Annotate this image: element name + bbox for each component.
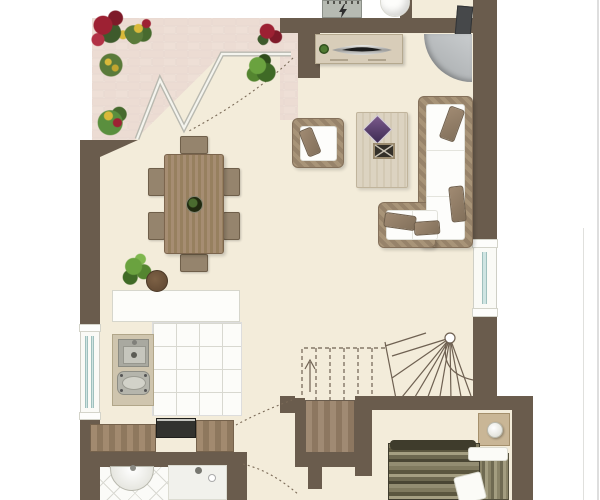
sideboard-handle-a	[330, 59, 348, 61]
kitchen-tiled-floor	[152, 322, 242, 416]
image-edge-line-inner	[583, 228, 584, 500]
table-centerpiece	[186, 196, 203, 213]
nightstand-lamp	[487, 422, 503, 438]
sofa-pillow-4	[414, 220, 441, 236]
electric-meter-box	[322, 0, 362, 18]
dining-chair-bottom	[180, 254, 208, 272]
cooktop-surface	[122, 376, 146, 390]
sink-drain	[131, 352, 137, 358]
sideboard-handle-b	[368, 59, 386, 61]
kitchen-appliance	[156, 418, 196, 438]
coffee-table	[356, 112, 408, 188]
green-bush	[244, 52, 278, 86]
kitchen-lower-cabinet-left	[90, 424, 156, 452]
dining-chair-right-1	[223, 168, 240, 196]
terrace-flower-bush-3	[256, 20, 284, 48]
shower	[168, 465, 227, 500]
kitchen-sink-counter	[112, 334, 154, 406]
kitchen-counter-white	[112, 290, 240, 322]
dining-chair-top	[180, 136, 208, 154]
cooktop-knob-c	[120, 389, 123, 392]
cooktop-knob-d	[144, 389, 147, 392]
cooktop	[117, 371, 150, 395]
terrace-flower-pot-1	[97, 50, 125, 80]
floorplan-canvas	[0, 0, 600, 500]
shower-head	[195, 467, 202, 474]
bed-sheet-fold	[468, 447, 508, 461]
image-edge-line-outer	[597, 0, 599, 500]
terrace-flower-pot-2	[94, 104, 130, 138]
cooktop-knob-b	[144, 374, 147, 377]
tv-icon	[330, 41, 394, 59]
lightning-bolt-icon	[337, 4, 349, 18]
terrace-flower-bush-2	[124, 14, 156, 46]
coffee-table-book	[363, 115, 393, 145]
armchair	[292, 118, 344, 168]
kitchen-lower-cabinet-right	[196, 420, 234, 452]
sofa-seam-1	[427, 150, 464, 151]
door-swing-kitchen	[236, 400, 292, 425]
bed-blanket-roll	[390, 440, 476, 450]
kitchen-sink	[118, 339, 149, 367]
dining-chair-left-2	[148, 212, 165, 240]
shower-drain	[209, 475, 215, 481]
coffee-table-basket	[373, 143, 395, 159]
basin-faucet	[130, 465, 136, 471]
door-swing-bathroom	[243, 464, 299, 495]
cooktop-knob-a	[120, 374, 123, 377]
sink-faucet	[132, 340, 137, 345]
dining-chair-right-2	[223, 212, 240, 240]
sideboard-plant	[319, 44, 329, 54]
tv-sideboard	[315, 34, 403, 64]
dining-chair-left-1	[148, 168, 165, 196]
round-pot	[146, 270, 168, 292]
